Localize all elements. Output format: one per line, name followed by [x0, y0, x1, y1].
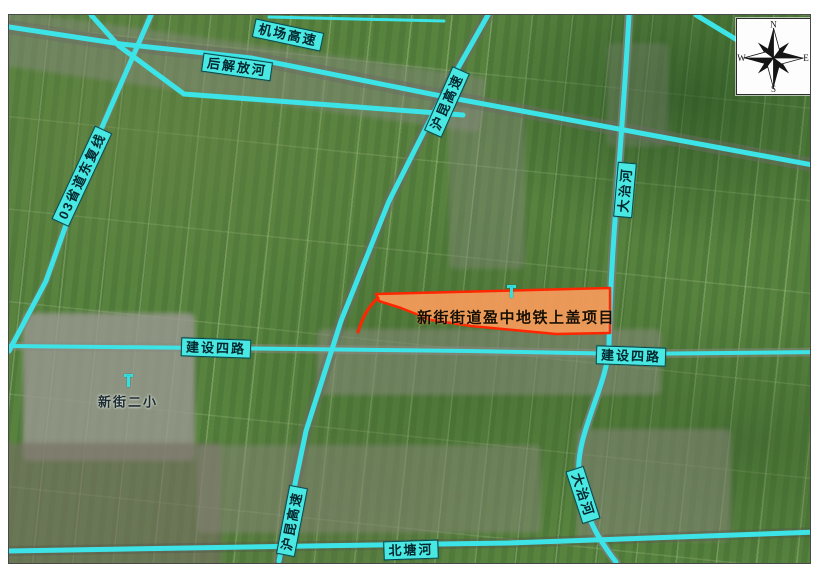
school-marker-icon: [124, 374, 133, 387]
project-site-label: 新街街道盈中地铁上盖项目: [417, 307, 615, 328]
road-river-overlay: [9, 15, 810, 563]
compass-rose: N E S W: [736, 18, 811, 95]
label-beitang-river: 北塘河: [383, 540, 439, 561]
compass-south-label: S: [771, 84, 776, 94]
compass-north-label: N: [770, 20, 777, 30]
label-jianshe-fourth-road-left: 建设四路: [181, 337, 252, 358]
compass-east-label: E: [803, 53, 809, 63]
compass-star-icon: N E S W: [737, 19, 810, 94]
school-label: 新街二小: [98, 392, 158, 411]
satellite-map-canvas: 机场高速 后解放河 03省道东复线 沪昆高速 沪昆高速 大治河 大治河 建设四路…: [8, 14, 811, 564]
map-figure-page: 机场高速 后解放河 03省道东复线 沪昆高速 沪昆高速 大治河 大治河 建设四路…: [0, 0, 817, 575]
compass-west-label: W: [737, 53, 746, 63]
label-jianshe-fourth-road-right: 建设四路: [596, 345, 667, 366]
project-site-marker-icon: [507, 285, 516, 298]
